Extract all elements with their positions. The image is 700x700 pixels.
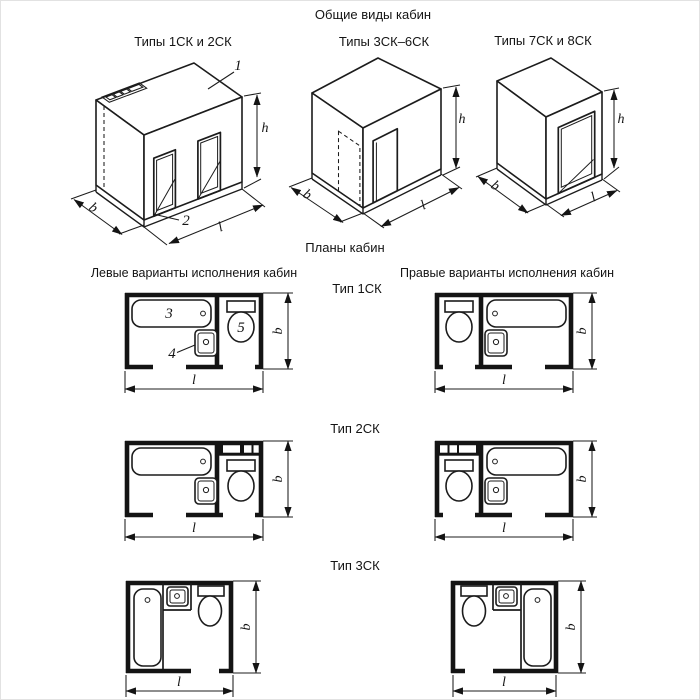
svg-text:l: l: [502, 521, 506, 536]
washbasin: [195, 478, 217, 504]
isometric-view-7sk-8sk: h b l: [476, 58, 625, 217]
dimension-h: h: [244, 93, 269, 188]
svg-text:h: h: [618, 112, 625, 127]
dimension-l: l: [435, 371, 573, 393]
toilet: [445, 460, 473, 501]
left-variants-title: Левые варианты исполнения кабин: [91, 266, 297, 280]
bathtub: [132, 448, 211, 475]
view-label-1sk-2sk: Типы 1СК и 2СК: [134, 34, 232, 49]
bathtub: [487, 300, 566, 327]
svg-text:b: b: [86, 200, 100, 216]
washbasin: [195, 330, 217, 356]
washbasin: [485, 330, 507, 356]
bathtub: [487, 448, 566, 475]
svg-text:b: b: [300, 187, 314, 203]
dimension-b: b: [233, 581, 261, 673]
dimension-l: l: [435, 519, 573, 541]
dimension-b: b: [263, 293, 293, 369]
washbasin: [496, 587, 517, 606]
drawing-title: Общие виды кабин: [315, 7, 431, 22]
svg-text:h: h: [262, 121, 269, 136]
toilet: [198, 586, 224, 626]
dimension-h: h: [443, 85, 466, 175]
toilet: [461, 586, 487, 626]
svg-text:l: l: [192, 521, 196, 536]
bathtub: [134, 589, 161, 666]
toilet: [227, 460, 255, 501]
plan-2sk-right: b l: [435, 441, 597, 541]
dimension-b: b: [263, 441, 293, 517]
callout-3: 3: [164, 306, 173, 322]
drawing-sheet: Общие виды кабин Типы 1СК и 2СК Типы 3СК…: [0, 0, 700, 700]
technical-drawing-canvas: Общие виды кабин Типы 1СК и 2СК Типы 3СК…: [1, 1, 700, 700]
svg-text:b: b: [575, 328, 590, 335]
svg-text:h: h: [459, 112, 466, 127]
plan-1sk-right: b l: [435, 293, 597, 393]
plan-3sk-right: b l: [451, 581, 586, 697]
plan-row-label-1sk: Тип 1СК: [332, 281, 382, 296]
toilet: [445, 301, 473, 342]
plan-2sk-left: b l: [125, 441, 293, 541]
svg-text:l: l: [418, 198, 428, 213]
callout-4-leader: [177, 345, 195, 353]
svg-text:l: l: [502, 675, 506, 690]
callout-4: 4: [168, 346, 176, 362]
dimension-l: l: [453, 675, 556, 697]
view-label-3sk-6sk: Типы 3СК–6СК: [339, 34, 430, 49]
isometric-view-3sk-6sk: h b l: [289, 58, 466, 228]
callout-5: 5: [237, 320, 245, 336]
dimension-l: l: [125, 519, 263, 541]
svg-text:b: b: [271, 328, 286, 335]
plan-row-label-2sk: Тип 2СК: [330, 421, 380, 436]
svg-text:b: b: [271, 476, 286, 483]
isometric-view-1sk-2sk: 1 2 h b l: [71, 58, 269, 245]
plan-3sk-left: b l: [126, 581, 261, 697]
svg-text:l: l: [177, 675, 181, 690]
svg-text:b: b: [564, 624, 579, 631]
svg-text:l: l: [589, 190, 599, 205]
bathtub: [524, 589, 551, 666]
plan-1sk-left: 3 4 5 b l: [125, 293, 293, 393]
callout-2: 2: [182, 213, 190, 229]
plan-row-label-3sk: Тип 3СК: [330, 558, 380, 573]
washbasin: [485, 478, 507, 504]
svg-text:b: b: [575, 476, 590, 483]
dimension-b: b: [573, 441, 597, 517]
svg-text:l: l: [502, 373, 506, 388]
dimension-h: h: [604, 88, 625, 179]
svg-text:b: b: [239, 624, 254, 631]
dimension-b: b: [558, 581, 586, 673]
washbasin: [167, 587, 188, 606]
callout-1: 1: [234, 58, 242, 74]
dimension-l: l: [125, 371, 263, 393]
dimension-b: b: [573, 293, 597, 369]
dimension-l: l: [126, 675, 233, 697]
right-variants-title: Правые варианты исполнения кабин: [400, 266, 614, 280]
svg-text:l: l: [192, 373, 196, 388]
plans-section-title: Планы кабин: [305, 240, 384, 255]
view-label-7sk-8sk: Типы 7СК и 8СК: [494, 33, 592, 48]
svg-text:b: b: [488, 178, 502, 194]
